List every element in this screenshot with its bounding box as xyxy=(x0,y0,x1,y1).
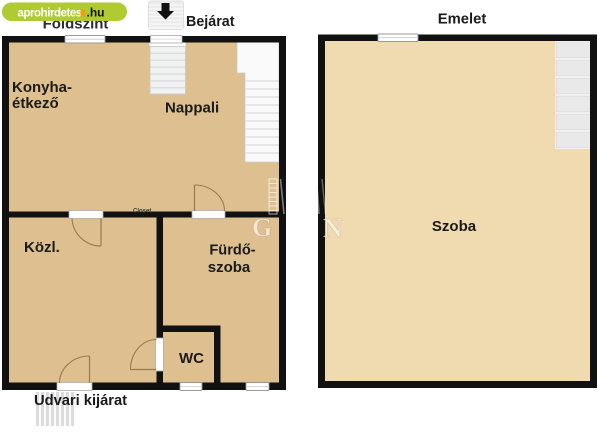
svg-text:Nappali: Nappali xyxy=(165,100,219,117)
svg-text:.hu: .hu xyxy=(87,6,105,20)
svg-text:Fürdő-: Fürdő- xyxy=(209,243,255,259)
svg-text:aprohirdetes: aprohirdetes xyxy=(18,8,82,20)
svg-text:Emelet: Emelet xyxy=(438,12,487,28)
svg-text:Szoba: Szoba xyxy=(432,218,477,235)
svg-text:étkező: étkező xyxy=(12,95,59,112)
svg-text:G: G xyxy=(252,213,272,242)
svg-text:szoba: szoba xyxy=(208,259,251,276)
svg-text:Bejárat: Bejárat xyxy=(186,14,235,30)
svg-text:Closet: Closet xyxy=(133,209,151,215)
svg-text:WC: WC xyxy=(179,350,204,367)
svg-text:N: N xyxy=(323,213,343,243)
svg-text:Konyha-: Konyha- xyxy=(12,79,72,96)
svg-text:Közl.: Közl. xyxy=(24,239,60,256)
svg-text:Udvari kijárat: Udvari kijárat xyxy=(34,393,127,409)
